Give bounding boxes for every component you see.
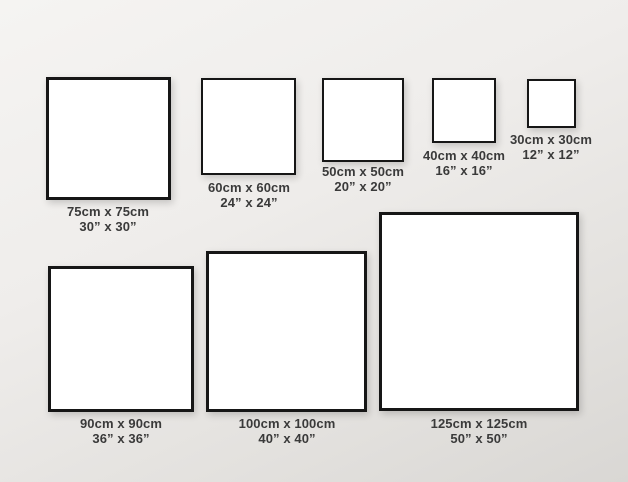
size-comparison-chart: 75cm x 75cm 30” x 30” 60cm x 60cm 24” x …	[0, 0, 628, 482]
size-inch-text: 40” x 40”	[207, 431, 367, 446]
size-cm-text: 30cm x 30cm	[471, 132, 628, 147]
size-cm-text: 125cm x 125cm	[399, 416, 559, 431]
size-cm-text: 75cm x 75cm	[28, 204, 188, 219]
frame-label-125x125: 125cm x 125cm 50” x 50”	[399, 416, 559, 446]
size-cm-text: 90cm x 90cm	[41, 416, 201, 431]
frame-label-90x90: 90cm x 90cm 36” x 36”	[41, 416, 201, 446]
size-inch-text: 24” x 24”	[169, 195, 329, 210]
size-inch-text: 50” x 50”	[399, 431, 559, 446]
frame-125x125	[379, 212, 579, 411]
frame-75x75	[46, 77, 171, 200]
size-inch-text: 30” x 30”	[28, 219, 188, 234]
frame-label-100x100: 100cm x 100cm 40” x 40”	[207, 416, 367, 446]
frame-60x60	[201, 78, 296, 175]
size-inch-text: 16” x 16”	[384, 163, 544, 178]
frame-100x100	[206, 251, 367, 412]
frame-30x30	[527, 79, 576, 128]
frame-90x90	[48, 266, 194, 412]
size-inch-text: 36” x 36”	[41, 431, 201, 446]
size-inch-text: 12” x 12”	[471, 147, 628, 162]
frame-label-75x75: 75cm x 75cm 30” x 30”	[28, 204, 188, 234]
size-inch-text: 20” x 20”	[283, 179, 443, 194]
size-cm-text: 100cm x 100cm	[207, 416, 367, 431]
frame-label-30x30: 30cm x 30cm 12” x 12”	[471, 132, 628, 162]
